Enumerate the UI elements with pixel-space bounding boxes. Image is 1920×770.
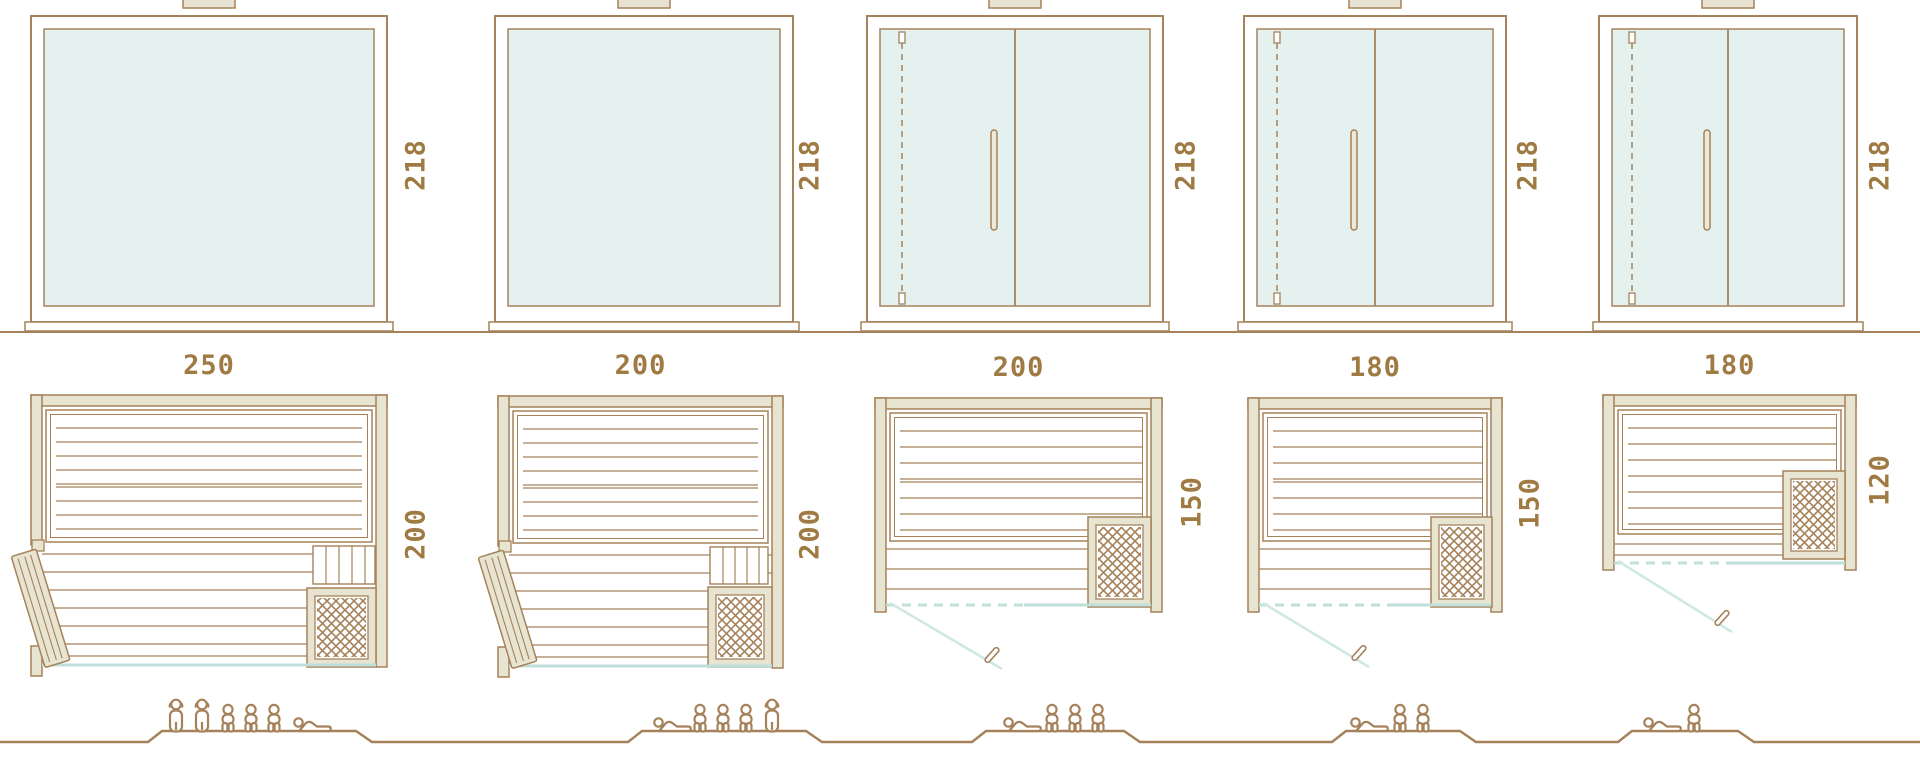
capacity-group-unit-1: [170, 700, 331, 732]
floorplan-unit-3: [874, 397, 1163, 687]
roof-vent-icon: [1349, 0, 1401, 8]
wall-right: [376, 395, 387, 667]
capacity-ground-line: [0, 731, 1920, 742]
door-handle-plan: [984, 647, 1000, 664]
person-sitting-icon: [695, 705, 706, 732]
width-dimension-unit-4: 180: [1247, 352, 1503, 383]
wall-top: [1603, 395, 1856, 406]
person-lying-icon: [1644, 718, 1680, 731]
height-dimension-unit-2: 218: [795, 139, 826, 191]
wall-left: [498, 396, 509, 546]
elevation-unit-2: [494, 0, 794, 336]
hinge-icon: [1274, 293, 1280, 304]
sill: [489, 322, 799, 331]
lower-bench-planks: [1614, 544, 1783, 555]
wall-right: [1845, 395, 1856, 570]
roof-vent-icon: [1702, 0, 1754, 8]
sill: [1593, 322, 1863, 331]
bench-step: [313, 546, 375, 584]
person-sitting-icon: [269, 705, 280, 732]
depth-dimension-unit-1: 200: [401, 508, 432, 560]
capacity-group-unit-3: [1004, 705, 1103, 732]
elevation-unit-3: [866, 0, 1164, 336]
roof-vent-icon: [183, 0, 235, 8]
height-dimension-unit-3: 218: [1171, 139, 1202, 191]
wall-left: [875, 398, 886, 612]
glass-pane: [44, 29, 374, 306]
person-standing-icon: [766, 700, 779, 732]
capacity-row: [0, 708, 1920, 770]
wall-top: [875, 398, 1162, 409]
width-dimension-unit-3: 200: [874, 352, 1163, 383]
width-dimension-unit-1: 250: [30, 350, 388, 381]
hinge-icon: [899, 293, 905, 304]
person-standing-icon: [196, 700, 209, 732]
sauna-size-comparison-diagram: 218 218 218 218 218 250 200 200 180 180 …: [0, 0, 1920, 770]
person-lying-icon: [1351, 718, 1387, 731]
floorplan-unit-2: [497, 395, 784, 695]
person-lying-icon: [654, 718, 690, 731]
glass-pane: [508, 29, 780, 306]
depth-dimension-unit-5: 120: [1865, 454, 1896, 506]
depth-dimension-unit-2: 200: [795, 508, 826, 560]
person-sitting-icon: [1395, 705, 1406, 732]
hinge-icon: [899, 32, 905, 43]
person-sitting-icon: [1070, 705, 1081, 732]
elevation-unit-1: [30, 0, 388, 336]
sill: [25, 322, 393, 331]
door-handle-plan: [1714, 610, 1730, 627]
floorplan-unit-5: [1602, 394, 1857, 654]
person-standing-icon: [170, 700, 183, 732]
hinge-icon: [1629, 293, 1635, 304]
person-sitting-icon: [718, 705, 729, 732]
width-dimension-unit-5: 180: [1602, 350, 1857, 381]
person-sitting-icon: [1093, 705, 1104, 732]
lower-bench-planks: [1259, 549, 1431, 589]
person-sitting-icon: [741, 705, 752, 732]
wall-top: [498, 396, 783, 407]
height-dimension-unit-1: 218: [401, 139, 432, 191]
person-sitting-icon: [1418, 705, 1429, 732]
person-sitting-icon: [223, 705, 234, 732]
wall-top: [31, 395, 387, 406]
heater-grille: [1793, 481, 1835, 549]
elevation-unit-5: [1598, 0, 1858, 336]
person-lying-icon: [1004, 718, 1040, 731]
depth-dimension-unit-3: 150: [1177, 476, 1208, 528]
person-lying-icon: [294, 718, 330, 731]
person-sitting-icon: [246, 705, 257, 732]
wall-left: [1603, 395, 1614, 570]
wall-top: [1248, 398, 1502, 409]
heater-grille: [317, 598, 366, 657]
roof-vent-icon: [618, 0, 670, 8]
wall-right: [1151, 398, 1162, 612]
wall-right: [772, 396, 783, 668]
heater-grille: [718, 597, 762, 657]
capacity-group-unit-5: [1644, 705, 1699, 732]
wall-left: [31, 395, 42, 545]
elevation-unit-4: [1243, 0, 1507, 336]
floorplan-unit-1: [30, 394, 388, 694]
door-handle: [991, 130, 997, 230]
sill: [1238, 322, 1512, 331]
hinge-icon: [1629, 32, 1635, 43]
upper-bench: [46, 410, 372, 542]
hinge-icon: [1274, 32, 1280, 43]
capacity-group-unit-4: [1351, 705, 1428, 732]
capacity-group-unit-2: [654, 700, 778, 732]
lower-bench-planks: [886, 549, 1088, 589]
upper-bench: [513, 411, 768, 543]
floorplan-unit-4: [1247, 397, 1503, 687]
width-dimension-unit-2: 200: [497, 350, 784, 381]
wall-left: [1248, 398, 1259, 612]
heater-grille: [1098, 527, 1141, 597]
door-handle: [1351, 130, 1357, 230]
height-dimension-unit-5: 218: [1865, 139, 1896, 191]
heater-grille: [1441, 527, 1482, 597]
height-dimension-unit-4: 218: [1513, 139, 1544, 191]
person-sitting-icon: [1047, 705, 1058, 732]
sill: [861, 322, 1169, 331]
door-handle: [1704, 130, 1710, 230]
door-handle-plan: [1351, 645, 1367, 662]
depth-dimension-unit-4: 150: [1515, 477, 1546, 529]
person-sitting-icon: [1689, 705, 1700, 732]
roof-vent-icon: [989, 0, 1041, 8]
